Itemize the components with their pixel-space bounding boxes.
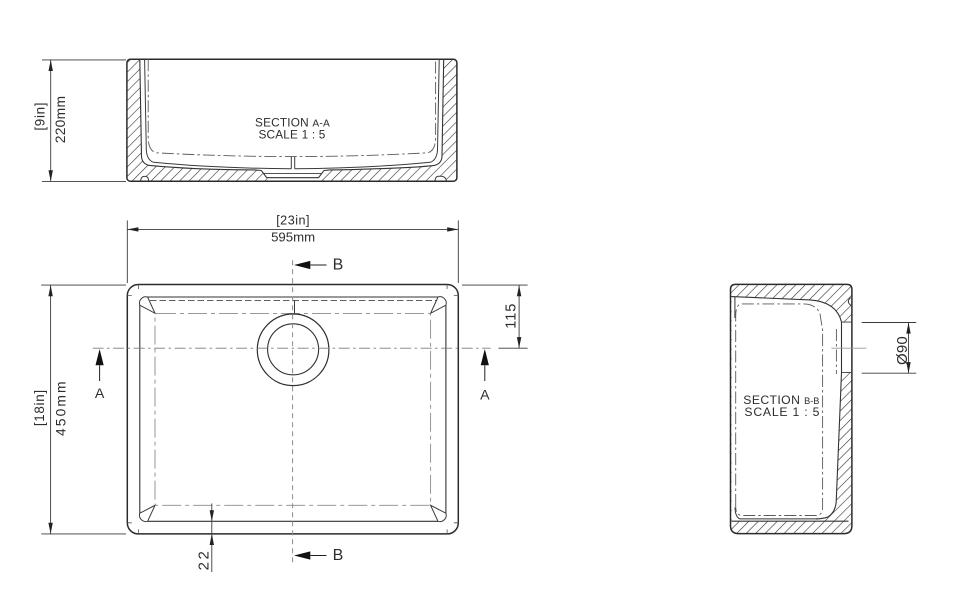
svg-text:[18in]: [18in] bbox=[32, 389, 47, 426]
svg-text:595mm: 595mm bbox=[271, 230, 315, 245]
svg-text:[23in]: [23in] bbox=[276, 213, 310, 227]
svg-text:[9in]: [9in] bbox=[32, 102, 47, 131]
svg-text:A: A bbox=[480, 388, 490, 404]
svg-text:450mm: 450mm bbox=[54, 379, 69, 436]
svg-text:Ø90: Ø90 bbox=[894, 336, 911, 365]
svg-text:SCALE 1 : 5: SCALE 1 : 5 bbox=[258, 128, 325, 142]
svg-text:220mm: 220mm bbox=[53, 96, 68, 144]
svg-text:B: B bbox=[333, 256, 344, 273]
svg-text:SCALE 1 : 5: SCALE 1 : 5 bbox=[744, 405, 820, 419]
svg-text:22: 22 bbox=[195, 549, 212, 571]
svg-text:B: B bbox=[333, 547, 344, 564]
svg-text:115: 115 bbox=[504, 303, 520, 329]
svg-text:A: A bbox=[95, 386, 105, 402]
